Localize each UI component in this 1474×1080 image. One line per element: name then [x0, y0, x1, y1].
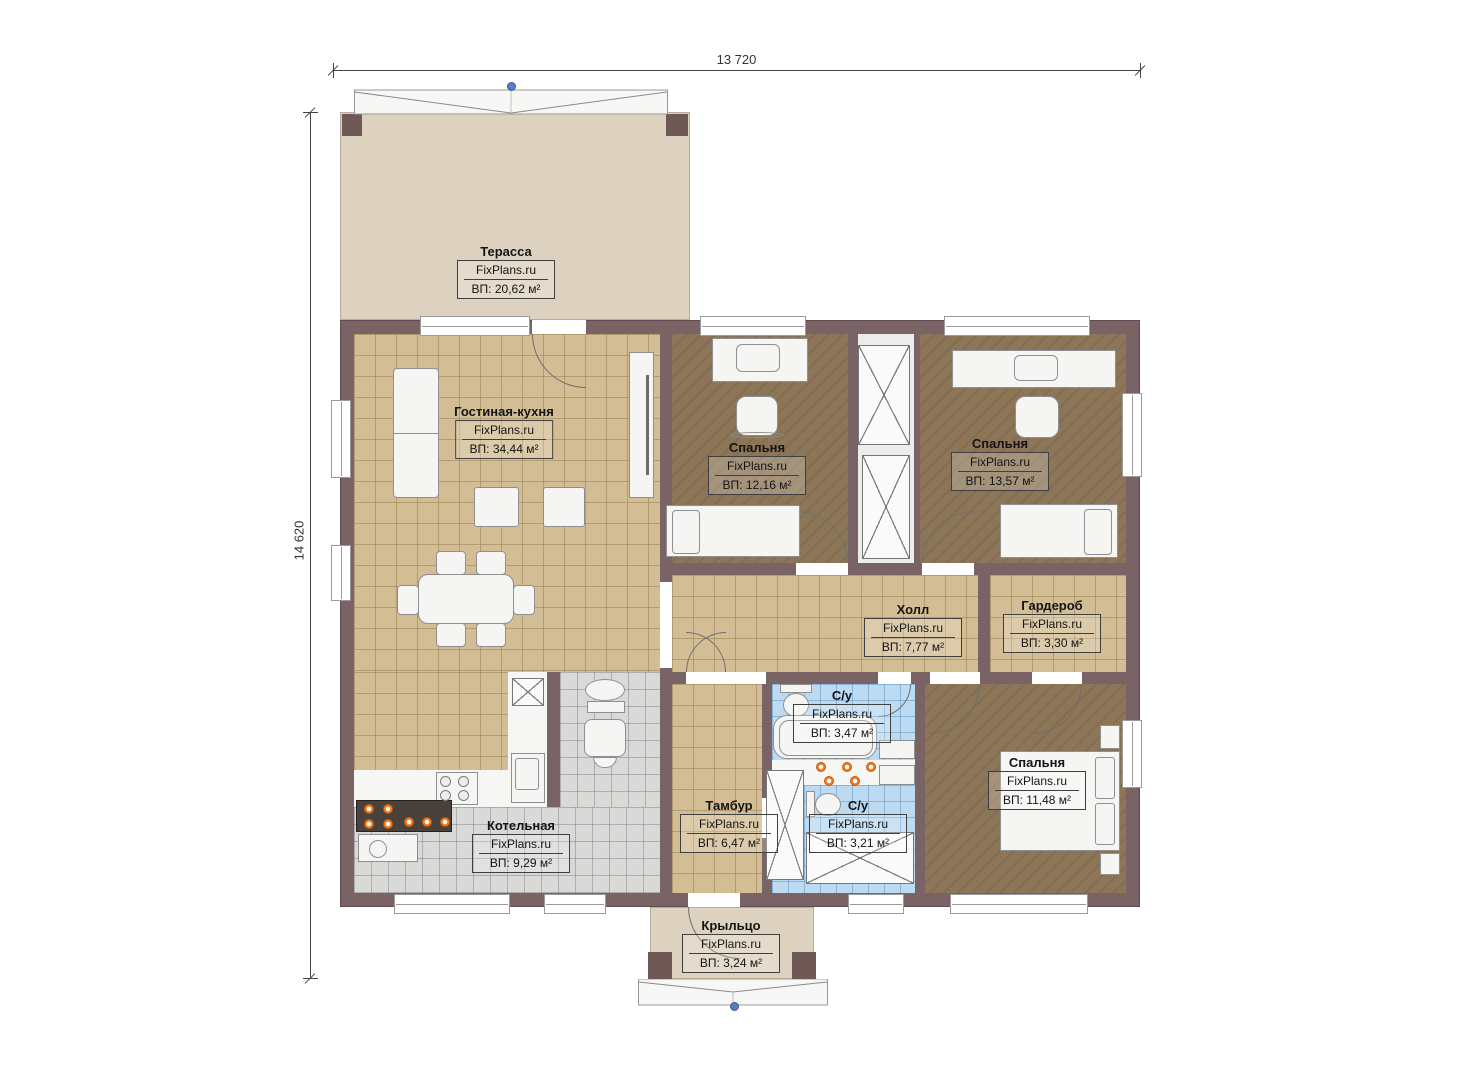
- window: [944, 316, 1090, 336]
- heater-vent: [587, 701, 625, 713]
- bed: [666, 505, 800, 557]
- terrace-column: [666, 114, 688, 136]
- watermark: FixPlans.ru: [871, 619, 955, 638]
- room-area: ВП: 34,44 м²: [462, 440, 546, 458]
- room-name: Гостиная-кухня: [454, 404, 554, 419]
- tv-stand: [629, 352, 654, 498]
- door-opening: [660, 582, 672, 668]
- room-living-floor: [354, 672, 508, 770]
- gas-burner-icon: [440, 817, 450, 827]
- room-info-box: FixPlans.ru ВП: 34,44 м²: [455, 420, 553, 459]
- armchair: [543, 487, 585, 527]
- room-info-box: FixPlans.ru ВП: 20,62 м²: [457, 260, 555, 299]
- gas-burner-icon: [866, 762, 876, 772]
- stove-burner-icon: [440, 776, 451, 787]
- room-label-bedroom1: Спальня FixPlans.ru ВП: 12,16 м²: [708, 440, 806, 495]
- kitchen-sink: [511, 753, 545, 803]
- room-area: ВП: 3,47 м²: [800, 724, 884, 742]
- watermark: FixPlans.ru: [800, 705, 884, 724]
- gas-burner-icon: [850, 776, 860, 786]
- window: [331, 545, 351, 601]
- watermark: FixPlans.ru: [816, 815, 900, 834]
- dining-table: [418, 574, 514, 624]
- chair: [397, 585, 419, 615]
- room-area: ВП: 7,77 м²: [871, 638, 955, 656]
- room-label-living: Гостиная-кухня FixPlans.ru ВП: 34,44 м²: [454, 404, 554, 459]
- window: [1122, 720, 1142, 788]
- room-area: ВП: 11,48 м²: [995, 791, 1079, 809]
- nightstand: [1100, 725, 1120, 749]
- chair: [476, 623, 506, 647]
- door-opening: [532, 320, 586, 334]
- gas-burner-icon: [383, 819, 393, 829]
- room-info-box: FixPlans.ru ВП: 11,48 м²: [988, 771, 1086, 810]
- gas-burner-icon: [824, 776, 834, 786]
- terrace-column: [342, 114, 362, 136]
- room-label-boiler: Котельная FixPlans.ru ВП: 9,29 м²: [472, 818, 570, 873]
- room-area: ВП: 3,24 м²: [689, 954, 773, 972]
- pillow: [672, 510, 700, 554]
- chair: [476, 551, 506, 575]
- room-label-garderob: Гардероб FixPlans.ru ВП: 3,30 м²: [1003, 598, 1101, 653]
- chair: [513, 585, 535, 615]
- stove-burner-icon: [458, 776, 469, 787]
- watermark: FixPlans.ru: [715, 457, 799, 476]
- door-opening: [878, 672, 911, 684]
- sink-basin: [515, 758, 539, 790]
- room-info-box: FixPlans.ru ВП: 6,47 м²: [680, 814, 778, 853]
- dimension-height-line: [310, 112, 311, 978]
- sofa-seam: [394, 433, 438, 434]
- roof-node-icon: [507, 82, 516, 91]
- room-name: Гардероб: [1003, 598, 1101, 613]
- room-area: ВП: 13,57 м²: [958, 472, 1042, 490]
- printer: [736, 344, 780, 372]
- bed: [1000, 504, 1118, 558]
- gas-burner-icon: [364, 804, 374, 814]
- window: [848, 894, 904, 914]
- shelf: [879, 765, 915, 785]
- watermark: FixPlans.ru: [995, 772, 1079, 791]
- window: [1122, 393, 1142, 477]
- dimension-width-line: [333, 70, 1140, 71]
- room-name: Спальня: [951, 436, 1049, 451]
- kitchen-hob: [512, 678, 544, 706]
- stove-burner-icon: [458, 790, 469, 801]
- pillow: [1095, 803, 1115, 845]
- gas-burner-icon: [364, 819, 374, 829]
- room-area: ВП: 6,47 м²: [687, 834, 771, 852]
- room-tambur-floor: [672, 684, 762, 893]
- room-info-box: FixPlans.ru ВП: 13,57 м²: [951, 452, 1049, 491]
- room-area: ВП: 20,62 м²: [464, 280, 548, 298]
- room-name: Терасса: [457, 244, 555, 259]
- printer: [1014, 355, 1058, 381]
- window: [544, 894, 606, 914]
- window: [420, 316, 530, 336]
- room-label-bath2: С/у FixPlans.ru ВП: 3,21 м²: [809, 798, 907, 853]
- stove-burner-icon: [440, 790, 451, 801]
- room-area: ВП: 12,16 м²: [715, 476, 799, 494]
- room-name: Котельная: [472, 818, 570, 833]
- dimension-width-label: 13 720: [333, 52, 1140, 67]
- desk-chair: [1015, 396, 1059, 438]
- porch-column: [792, 952, 816, 979]
- room-info-box: FixPlans.ru ВП: 9,29 м²: [472, 834, 570, 873]
- watermark: FixPlans.ru: [1010, 615, 1094, 634]
- roof-node-icon: [730, 1002, 739, 1011]
- door-opening: [930, 672, 980, 684]
- room-name: Крыльцо: [682, 918, 780, 933]
- room-info-box: FixPlans.ru ВП: 3,24 м²: [682, 934, 780, 973]
- room-name: Тамбур: [680, 798, 778, 813]
- room-area: ВП: 3,30 м²: [1010, 634, 1094, 652]
- room-info-box: FixPlans.ru ВП: 12,16 м²: [708, 456, 806, 495]
- floor-plan-canvas: 13 720 14 620: [0, 0, 1474, 1080]
- chair-base: [730, 432, 784, 438]
- watermark: FixPlans.ru: [687, 815, 771, 834]
- room-info-box: FixPlans.ru ВП: 7,77 м²: [864, 618, 962, 657]
- room-info-box: FixPlans.ru ВП: 3,47 м²: [793, 704, 891, 743]
- utility-sink: [358, 834, 418, 862]
- water-heater: [585, 679, 625, 701]
- watermark: FixPlans.ru: [479, 835, 563, 854]
- room-label-tambur: Тамбур FixPlans.ru ВП: 6,47 м²: [680, 798, 778, 853]
- room-area: ВП: 3,21 м²: [816, 834, 900, 852]
- room-label-bedroom3: Спальня FixPlans.ru ВП: 11,48 м²: [988, 755, 1086, 810]
- door-opening: [688, 893, 740, 907]
- window: [331, 400, 351, 478]
- room-name: Спальня: [708, 440, 806, 455]
- room-name: Холл: [864, 602, 962, 617]
- watermark: FixPlans.ru: [958, 453, 1042, 472]
- armchair: [474, 487, 519, 527]
- closet: [858, 345, 910, 445]
- chair: [436, 623, 466, 647]
- sofa: [393, 368, 439, 498]
- door-opening: [686, 672, 766, 684]
- room-label-hall: Холл FixPlans.ru ВП: 7,77 м²: [864, 602, 962, 657]
- window: [950, 894, 1088, 914]
- door-opening: [1032, 672, 1082, 684]
- desk-chair: [736, 396, 778, 436]
- nightstand: [1100, 853, 1120, 875]
- gas-burner-icon: [404, 817, 414, 827]
- watermark: FixPlans.ru: [462, 421, 546, 440]
- door-opening: [922, 563, 974, 575]
- room-label-porch: Крыльцо FixPlans.ru ВП: 3,24 м²: [682, 918, 780, 973]
- boiler-unit: [584, 719, 626, 757]
- room-label-bath1: С/у FixPlans.ru ВП: 3,47 м²: [793, 688, 891, 743]
- dimension-height-label: 14 620: [291, 521, 306, 561]
- sink-bowl: [369, 840, 387, 858]
- closet: [862, 455, 910, 559]
- room-area: ВП: 9,29 м²: [479, 854, 563, 872]
- porch-column: [648, 952, 672, 979]
- room-info-box: FixPlans.ru ВП: 3,30 м²: [1003, 614, 1101, 653]
- window: [700, 316, 806, 336]
- chair: [436, 551, 466, 575]
- pillow: [1084, 509, 1112, 555]
- watermark: FixPlans.ru: [464, 261, 548, 280]
- window: [394, 894, 510, 914]
- tv-icon: [646, 375, 649, 475]
- gas-burner-icon: [422, 817, 432, 827]
- room-label-terrace: Терасса FixPlans.ru ВП: 20,62 м²: [457, 244, 555, 299]
- gas-burner-icon: [383, 804, 393, 814]
- gas-burner-icon: [816, 762, 826, 772]
- room-name: С/у: [809, 798, 907, 813]
- room-label-bedroom2: Спальня FixPlans.ru ВП: 13,57 м²: [951, 436, 1049, 491]
- room-info-box: FixPlans.ru ВП: 3,21 м²: [809, 814, 907, 853]
- room-name: Спальня: [988, 755, 1086, 770]
- room-name: С/у: [793, 688, 891, 703]
- watermark: FixPlans.ru: [689, 935, 773, 954]
- pillow: [1095, 757, 1115, 799]
- door-opening: [796, 563, 848, 575]
- gas-burner-icon: [842, 762, 852, 772]
